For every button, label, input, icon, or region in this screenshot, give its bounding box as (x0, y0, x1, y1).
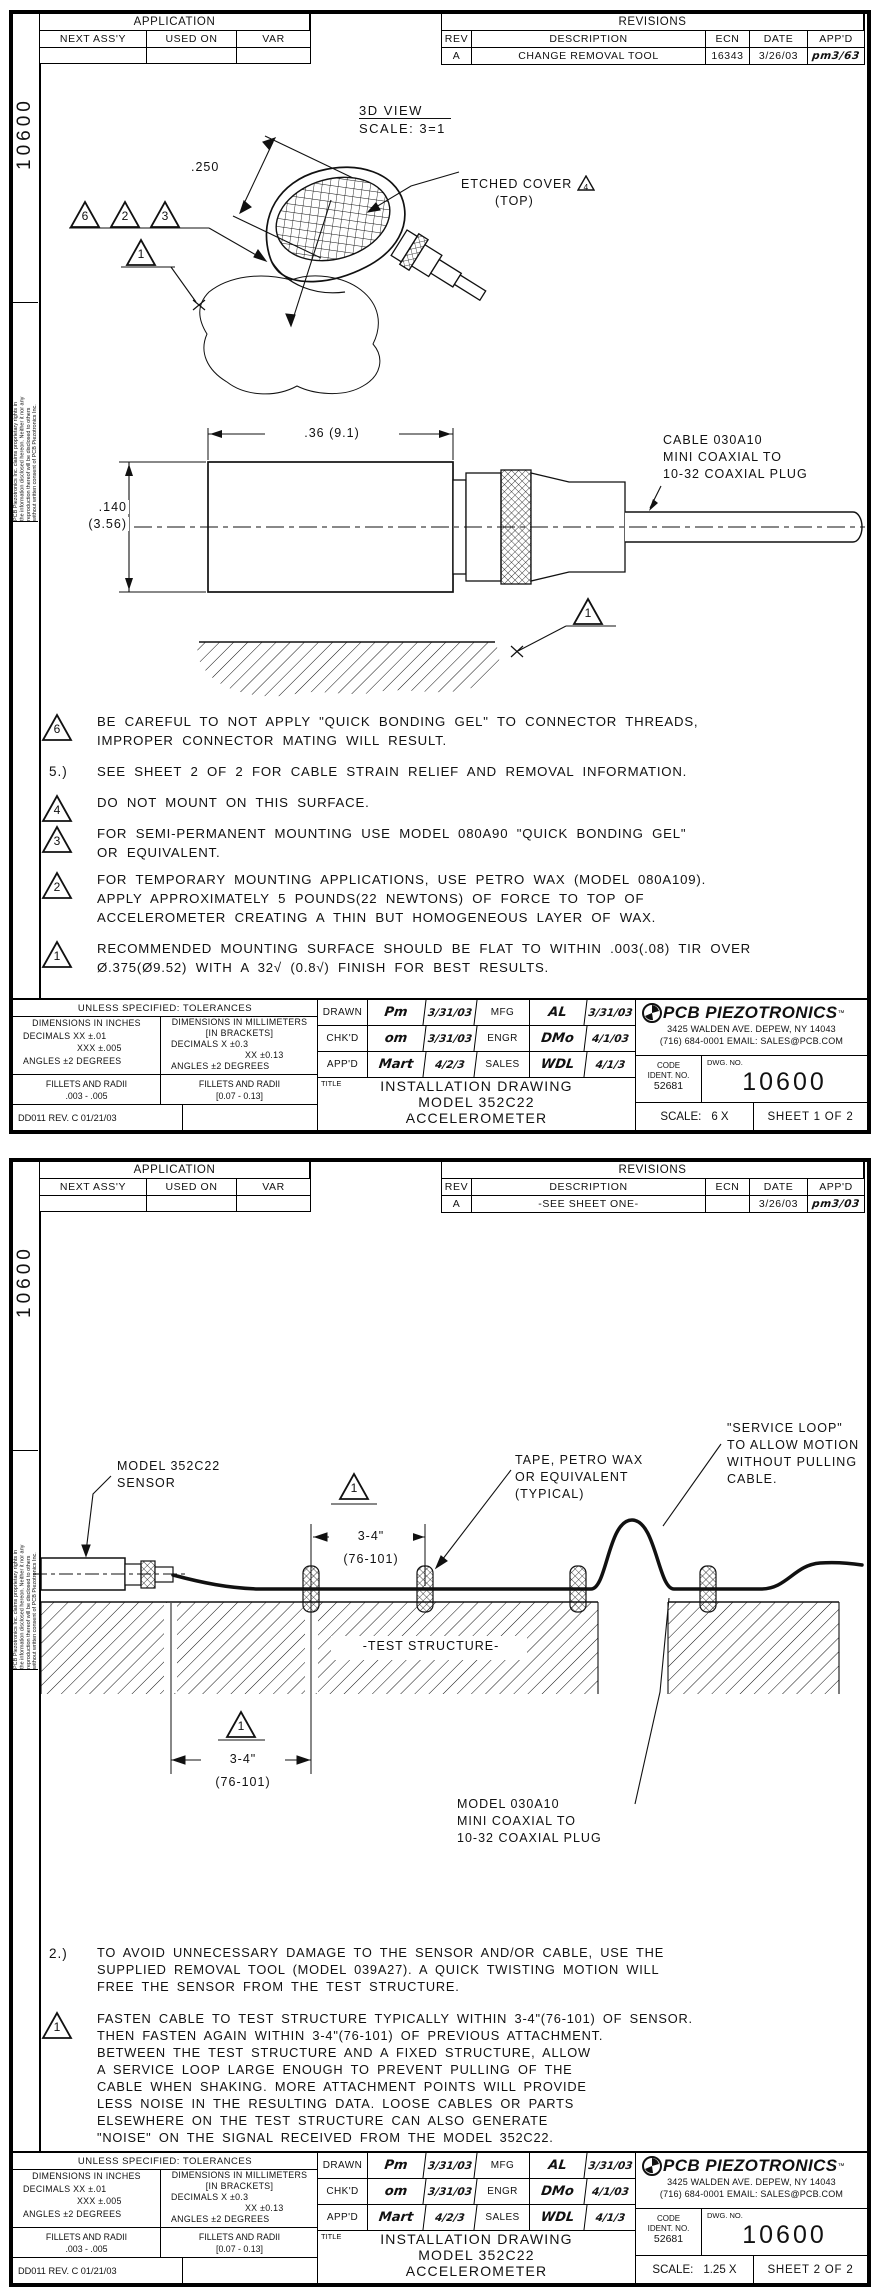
etched-cover-text: ETCHED COVER (461, 177, 572, 191)
flag-triangle-icon: 1 (338, 1472, 370, 1501)
sheet-2: 10600 PCB Piezotronics Inc. claims propr… (9, 1158, 871, 2287)
flag-triangle-icon: 4 (41, 794, 73, 823)
company-block: PCB PIEZOTRONICS ™ 3425 WALDEN AVE. DEPE… (635, 2153, 867, 2283)
application-table: APPLICATION NEXT ASS'Y USED ON VAR (39, 1162, 311, 1212)
col-rev: REV (442, 1179, 472, 1196)
sheet-cell: SHEET 1 OF 2 (754, 1103, 867, 1130)
col-used-on: USED ON (147, 31, 237, 48)
col-rev: REV (442, 31, 472, 48)
company-block: PCB PIEZOTRONICS ™ 3425 WALDEN AVE. DEPE… (635, 1000, 867, 1130)
view-scale: SCALE: 3=1 (359, 121, 446, 136)
col-var: VAR (237, 1179, 310, 1196)
dim-bottom-label: 3-4" (201, 1752, 285, 1766)
rev-letter: A (442, 48, 472, 64)
form-reference: DD011 REV. C 01/21/03 (13, 2258, 183, 2283)
left-border-strip: 10600 PCB Piezotronics Inc. claims propr… (13, 1162, 41, 2153)
rev-letter: A (442, 1196, 472, 1212)
cell-empty (40, 1196, 147, 1211)
title-block: UNLESS SPECIFIED: TOLERANCES DIMENSIONS … (13, 2151, 867, 2283)
note-3: 3 FOR SEMI-PERMANENT MOUNTING USE MODEL … (41, 824, 859, 862)
flag-triangle-icon: 6 (41, 713, 73, 742)
etched-cover-mesh (266, 165, 400, 274)
col-next-assy: NEXT ASS'Y (40, 31, 147, 48)
flag-triangle-icon: 4 (577, 175, 595, 191)
application-table: APPLICATION NEXT ASS'Y USED ON VAR (39, 14, 311, 64)
tolerances-block: UNLESS SPECIFIED: TOLERANCES DIMENSIONS … (13, 1000, 318, 1130)
flag-triangle-icon: 1 (41, 940, 73, 969)
application-title: APPLICATION (40, 1162, 310, 1179)
sheet-1: 10600 PCB Piezotronics Inc. claims propr… (9, 10, 871, 1134)
flag-triangle-icon: 2 (41, 871, 73, 900)
side-drawing-number: 10600 (14, 1192, 36, 1372)
pcb-logo-icon (641, 1002, 663, 1024)
mounting-surface-hatch (197, 642, 499, 696)
tolerances-block: UNLESS SPECIFIED: TOLERANCES DIMENSIONS … (13, 2153, 318, 2283)
revisions-title: REVISIONS (442, 1162, 864, 1179)
note-2: 2 FOR TEMPORARY MOUNTING APPLICATIONS, U… (41, 870, 859, 927)
col-date: DATE (750, 1179, 808, 1196)
rev-date: 3/26/03 (750, 48, 808, 64)
revisions-title: REVISIONS (442, 14, 864, 31)
note-2: 2.) TO AVOID UNNECESSARY DAMAGE TO THE S… (41, 1944, 859, 1995)
signoff-grid: DRAWN Pm 3/31/03 MFG AL 3/31/03 CHK'D om… (318, 1000, 635, 1078)
drawing-page: { "shared": { "side_number": "10600", "p… (0, 0, 881, 2291)
flag-triangle-icon: 3 (41, 825, 73, 854)
company-contact: (716) 684-0001 EMAIL: SALES@PCB.COM (636, 2189, 867, 2201)
dim-250-label: .250 (189, 160, 221, 174)
left-border-strip: 10600 PCB Piezotronics Inc. claims propr… (13, 14, 41, 1000)
form-reference: DD011 REV. C 01/21/03 (13, 1105, 183, 1130)
sheet-cell: SHEET 2 OF 2 (754, 2256, 867, 2283)
mounting-surface-blob (200, 276, 380, 394)
drawing-title: TITLE INSTALLATION DRAWING MODEL 352C22 … (318, 1078, 635, 1130)
col-description: DESCRIPTION (472, 1179, 706, 1196)
etched-cover-callout: ETCHED COVER4 (TOP) (461, 158, 641, 227)
rev-description: -SEE SHEET ONE- (472, 1196, 706, 1212)
dim-height-in-label: .140 (67, 500, 129, 514)
note-6: 6 BE CAREFUL TO NOT APPLY "QUICK BONDING… (41, 712, 859, 750)
rev-appd-signature: pm3/03 (807, 1196, 865, 1212)
plug-callout: MODEL 030A10 MINI COAXIAL TO 10-32 COAXI… (457, 1796, 602, 1847)
col-used-on: USED ON (147, 1179, 237, 1196)
rev-date: 3/26/03 (750, 1196, 808, 1212)
side-drawing-number: 10600 (14, 44, 36, 224)
flag-triangle-icon: 1 (572, 597, 604, 626)
code-ident-cell: CODE IDENT. NO. 52681 (636, 1056, 702, 1102)
service-loop-callout: "SERVICE LOOP" TO ALLOW MOTION WITHOUT P… (727, 1420, 859, 1488)
col-var: VAR (237, 31, 310, 48)
test-structure-label: -TEST STRUCTURE- (331, 1639, 531, 1653)
revisions-table: REVISIONS REV DESCRIPTION ECN DATE APP'D… (441, 1162, 865, 1213)
dim-top-label: 3-4" (329, 1529, 413, 1543)
scale-cell: SCALE: 6 X (636, 1103, 754, 1130)
flag-triangle-icon: 2 (109, 200, 141, 229)
rev-appd-signature: pm3/63 (807, 48, 865, 64)
dwg-no-cell: DWG. NO. 10600 (702, 1056, 867, 1102)
proprietary-notice: PCB Piezotronics Inc. claims proprietary… (13, 1450, 38, 1670)
dwg-no-cell: DWG. NO. 10600 (702, 2209, 867, 2255)
note-4: 4 DO NOT MOUNT ON THIS SURFACE. (41, 793, 859, 823)
company-name: PCB PIEZOTRONICS (663, 1003, 838, 1023)
view-title: 3D VIEW (359, 103, 451, 119)
col-next-assy: NEXT ASS'Y (40, 1179, 147, 1196)
cell-empty (237, 1196, 310, 1211)
dim-bottom-mm-label: (76-101) (185, 1775, 301, 1789)
col-ecn: ECN (706, 1179, 750, 1196)
connector-3d (390, 227, 493, 310)
col-date: DATE (750, 31, 808, 48)
flag-triangle-icon: 1 (225, 1710, 257, 1739)
dim-height-mm-label: (3.56) (61, 517, 129, 531)
company-address: 3425 WALDEN AVE. DEPEW, NY 14043 (636, 2177, 867, 2189)
code-ident-cell: CODE IDENT. NO. 52681 (636, 2209, 702, 2255)
cell-empty (147, 48, 237, 63)
flag-triangle-icon: 1 (41, 2011, 73, 2040)
signoff-grid: DRAWN Pm 3/31/03 MFG AL 3/31/03 CHK'D om… (318, 2153, 635, 2231)
company-contact: (716) 684-0001 EMAIL: SALES@PCB.COM (636, 1036, 867, 1048)
flag-triangle-icon: 3 (149, 200, 181, 229)
col-appd: APP'D (808, 1179, 864, 1196)
note-5: 5.) SEE SHEET 2 OF 2 FOR CABLE STRAIN RE… (41, 762, 859, 781)
note-1: 1 FASTEN CABLE TO TEST STRUCTURE TYPICAL… (41, 2010, 859, 2146)
drawing-title: TITLE INSTALLATION DRAWING MODEL 352C22 … (318, 2231, 635, 2283)
rev-ecn: 16343 (706, 48, 750, 64)
etched-top-text: (TOP) (461, 193, 641, 210)
sensor-callout: MODEL 352C22 SENSOR (117, 1458, 220, 1492)
accelerometer-3d-view (266, 165, 492, 311)
flag-triangle-icon: 1 (125, 238, 157, 267)
pcb-logo-icon (641, 2155, 663, 2177)
cable-with-service-loop (173, 1520, 862, 1589)
company-name: PCB PIEZOTRONICS (663, 2156, 838, 2176)
note-1: 1 RECOMMENDED MOUNTING SURFACE SHOULD BE… (41, 939, 859, 977)
col-description: DESCRIPTION (472, 31, 706, 48)
view-title-block: 3D VIEW SCALE: 3=1 (359, 102, 451, 138)
revisions-table: REVISIONS REV DESCRIPTION ECN DATE APP'D… (441, 14, 865, 65)
rev-description: CHANGE REMOVAL TOOL (472, 48, 706, 64)
cell-empty (237, 48, 310, 63)
dim-width-label: .36 (9.1) (265, 426, 399, 440)
dim-top-mm-label: (76-101) (313, 1552, 429, 1566)
cell-empty (40, 48, 147, 63)
tape-callout: TAPE, PETRO WAX OR EQUIVALENT (TYPICAL) (515, 1452, 643, 1503)
col-ecn: ECN (706, 31, 750, 48)
company-address: 3425 WALDEN AVE. DEPEW, NY 14043 (636, 1024, 867, 1036)
flag-triangle-icon: 6 (69, 200, 101, 229)
application-title: APPLICATION (40, 14, 310, 31)
title-block: UNLESS SPECIFIED: TOLERANCES DIMENSIONS … (13, 998, 867, 1130)
col-appd: APP'D (808, 31, 864, 48)
cable-callout: CABLE 030A10 MINI COAXIAL TO 10-32 COAXI… (663, 432, 808, 483)
proprietary-notice: PCB Piezotronics Inc. claims proprietary… (13, 302, 38, 522)
rev-ecn (706, 1196, 750, 1212)
scale-cell: SCALE: 1.25 X (636, 2256, 754, 2283)
cell-empty (147, 1196, 237, 1211)
